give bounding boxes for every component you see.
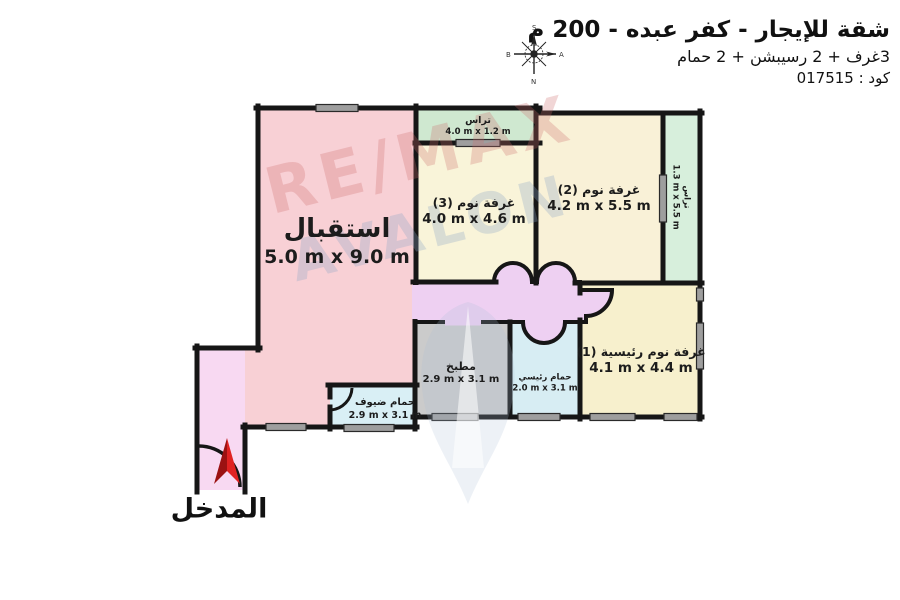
page-title: شقة للإيجار - كفر عبده - 200 م — [527, 16, 890, 45]
reception-label: استقبال 5.0 m x 9.0 m — [264, 213, 410, 269]
svg-text:B: B — [506, 51, 511, 59]
master-bath-label: حمام رئيسي 2.0 m x 3.1 m — [512, 372, 577, 393]
compass-icon: S N B A — [505, 22, 565, 86]
room-size: 4.0 m x 1.2 m — [445, 127, 510, 138]
bedroom2-label: غرفة نوم (2) 4.2 m x 5.5 m — [547, 182, 650, 215]
window — [344, 425, 394, 432]
room-name: تراس — [681, 164, 692, 229]
room-size: 2.9 m x 3.1 m — [349, 409, 422, 421]
room-name: غرفة نوم (2) — [547, 182, 650, 198]
balloon-watermark — [421, 302, 514, 504]
window — [316, 105, 358, 112]
room-size: 4.2 m x 5.5 m — [547, 197, 650, 214]
room-name: حمام رئيسي — [512, 372, 577, 383]
room-name: مطبخ — [423, 360, 500, 374]
window — [697, 288, 704, 301]
title-block: شقة للإيجار - كفر عبده - 200 م 3غرف + 2 … — [527, 16, 890, 87]
bedroom3-label: غرفة نوم (3) 4.0 m x 4.6 m — [422, 195, 525, 228]
window — [660, 175, 667, 222]
room-name: غرفة نوم (3) — [422, 195, 525, 211]
svg-text:A: A — [559, 51, 564, 59]
guest-bath-label: حمام ضيوف 2.9 m x 3.1 m — [349, 397, 422, 421]
room-size: 2.9 m x 3.1 m — [423, 374, 500, 387]
window — [456, 140, 500, 147]
svg-text:N: N — [531, 78, 536, 86]
entrance-label: المدخل — [171, 494, 268, 525]
page-subtitle: 3غرف + 2 رسيبشن + 2 حمام — [527, 47, 890, 66]
terrace-right-label: تراس 1.3 m x 5.5 m — [670, 164, 691, 229]
svg-text:S: S — [532, 24, 537, 32]
room-size: 1.3 m x 5.5 m — [670, 164, 681, 229]
room-name: غرفة نوم رئيسية (1) — [576, 344, 705, 360]
terrace-top-label: تراس 4.0 m x 1.2 m — [445, 115, 510, 138]
room-size: 4.0 m x 4.6 m — [422, 210, 525, 227]
floorplan-drawing — [0, 0, 900, 600]
window — [266, 424, 306, 431]
room-name: تراس — [445, 115, 510, 127]
room-size: 5.0 m x 9.0 m — [264, 245, 410, 269]
room-name: حمام ضيوف — [349, 397, 422, 410]
floorplan-page: RE/MAX AVALON شقة للإيجار - كفر عبده - 2… — [0, 0, 900, 600]
room-size: 2.0 m x 3.1 m — [512, 383, 577, 394]
master-bedroom-label: غرفة نوم رئيسية (1) 4.1 m x 4.4 m — [576, 344, 705, 377]
listing-code: كود : 017515 — [527, 69, 890, 87]
room-size: 4.1 m x 4.4 m — [576, 359, 705, 376]
window — [518, 414, 560, 421]
window — [590, 414, 635, 421]
room-name: استقبال — [264, 213, 410, 246]
kitchen-label: مطبخ 2.9 m x 3.1 m — [423, 360, 500, 386]
window — [664, 414, 697, 421]
